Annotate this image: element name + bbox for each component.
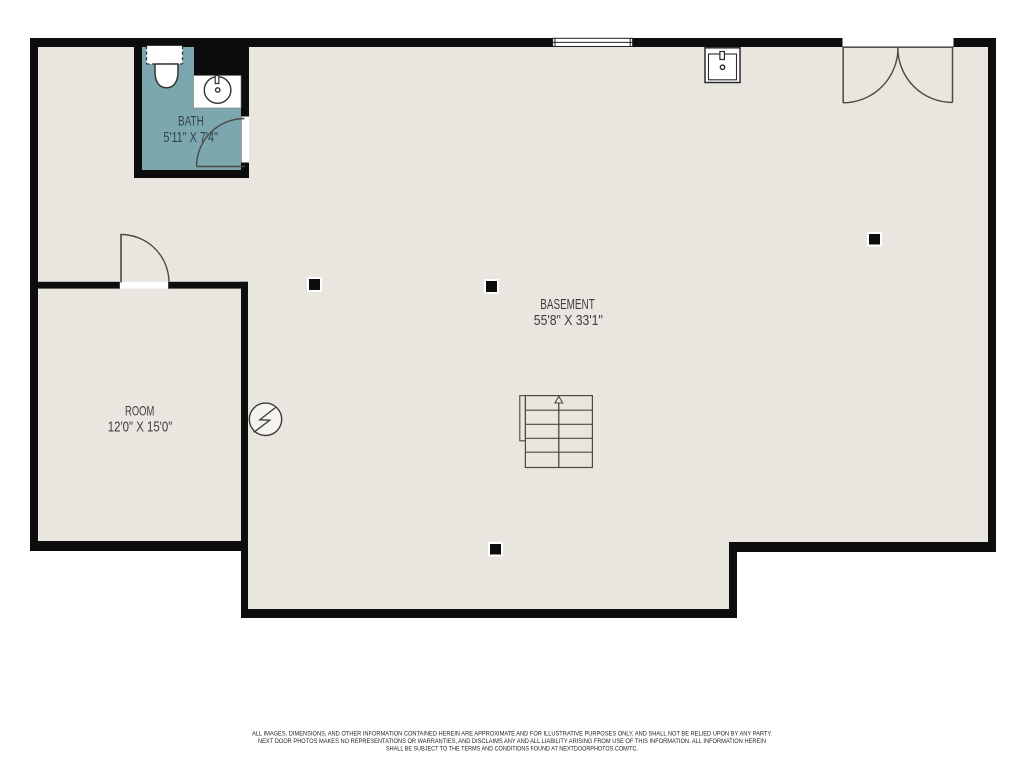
svg-text:55'8" X 33'1": 55'8" X 33'1" xyxy=(534,312,603,329)
svg-text:BATH: BATH xyxy=(178,113,204,129)
svg-text:ROOM: ROOM xyxy=(125,403,154,419)
svg-text:SHALL BE SUBJECT TO THE TERMS: SHALL BE SUBJECT TO THE TERMS AND CONDIT… xyxy=(386,746,638,753)
svg-text:5'11" X 7'4": 5'11" X 7'4" xyxy=(163,129,218,146)
svg-text:BASEMENT: BASEMENT xyxy=(540,296,595,313)
svg-text:NEXT DOOR PHOTOS MAKES NO REPR: NEXT DOOR PHOTOS MAKES NO REPRESENTATION… xyxy=(258,738,766,745)
svg-text:ALL IMAGES, DIMENSIONS, AND OT: ALL IMAGES, DIMENSIONS, AND OTHER INFORM… xyxy=(252,731,772,738)
svg-text:12'0" X 15'0": 12'0" X 15'0" xyxy=(108,419,173,436)
